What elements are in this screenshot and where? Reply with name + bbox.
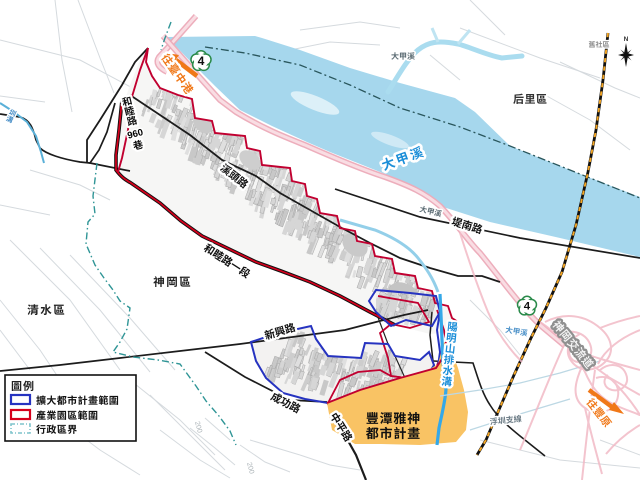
svg-text:4: 4	[524, 301, 531, 313]
svg-text:4: 4	[198, 54, 205, 68]
svg-text:N: N	[624, 36, 629, 43]
